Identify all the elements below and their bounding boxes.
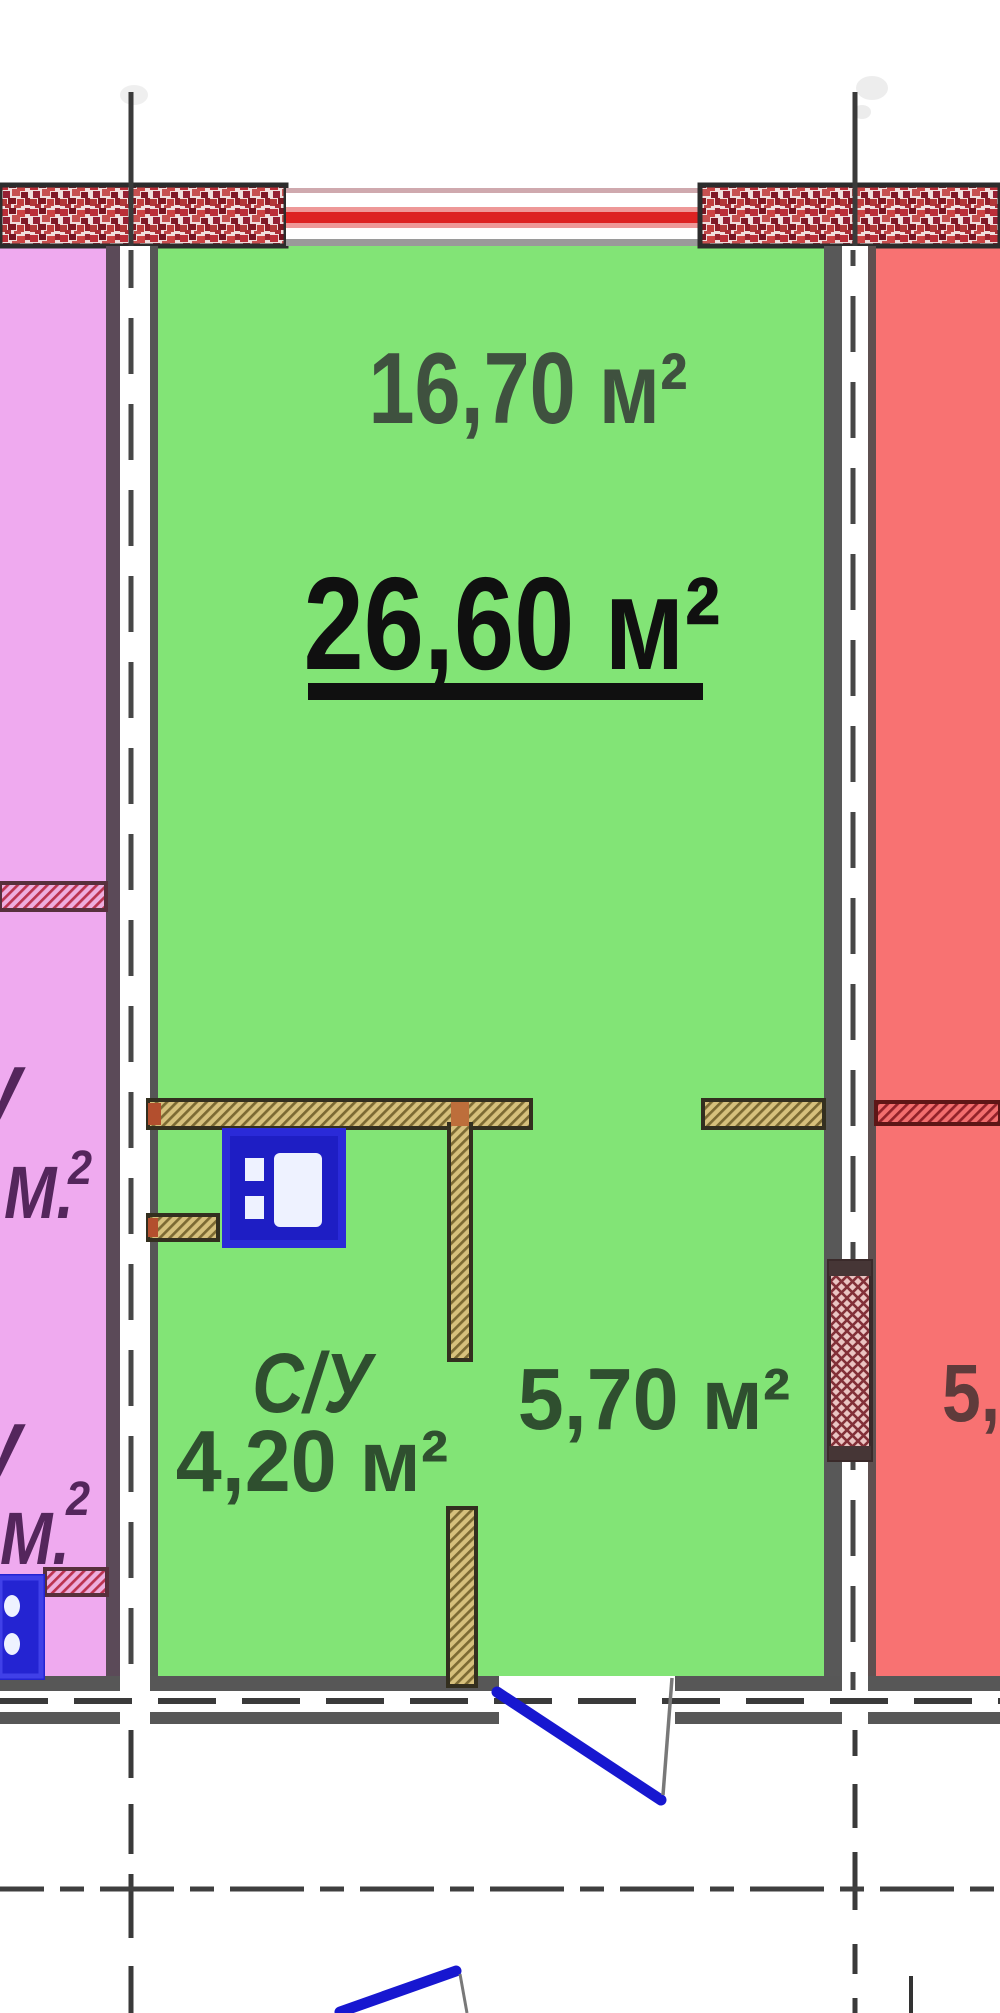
- svg-text:5,70 м²: 5,70 м²: [518, 1350, 790, 1447]
- svg-text:М.: М.: [0, 1497, 70, 1580]
- svg-text:М.: М.: [4, 1151, 74, 1234]
- svg-text:у: у: [0, 1033, 26, 1134]
- svg-text:2: 2: [65, 1472, 90, 1526]
- svg-text:16,70 м²: 16,70 м²: [368, 331, 687, 445]
- svg-text:26,60 м²: 26,60 м²: [304, 550, 721, 698]
- svg-text:у: у: [0, 1390, 26, 1491]
- svg-text:5,: 5,: [942, 1348, 1000, 1440]
- svg-text:4,20 м²: 4,20 м²: [176, 1412, 448, 1509]
- svg-text:2: 2: [67, 1141, 92, 1195]
